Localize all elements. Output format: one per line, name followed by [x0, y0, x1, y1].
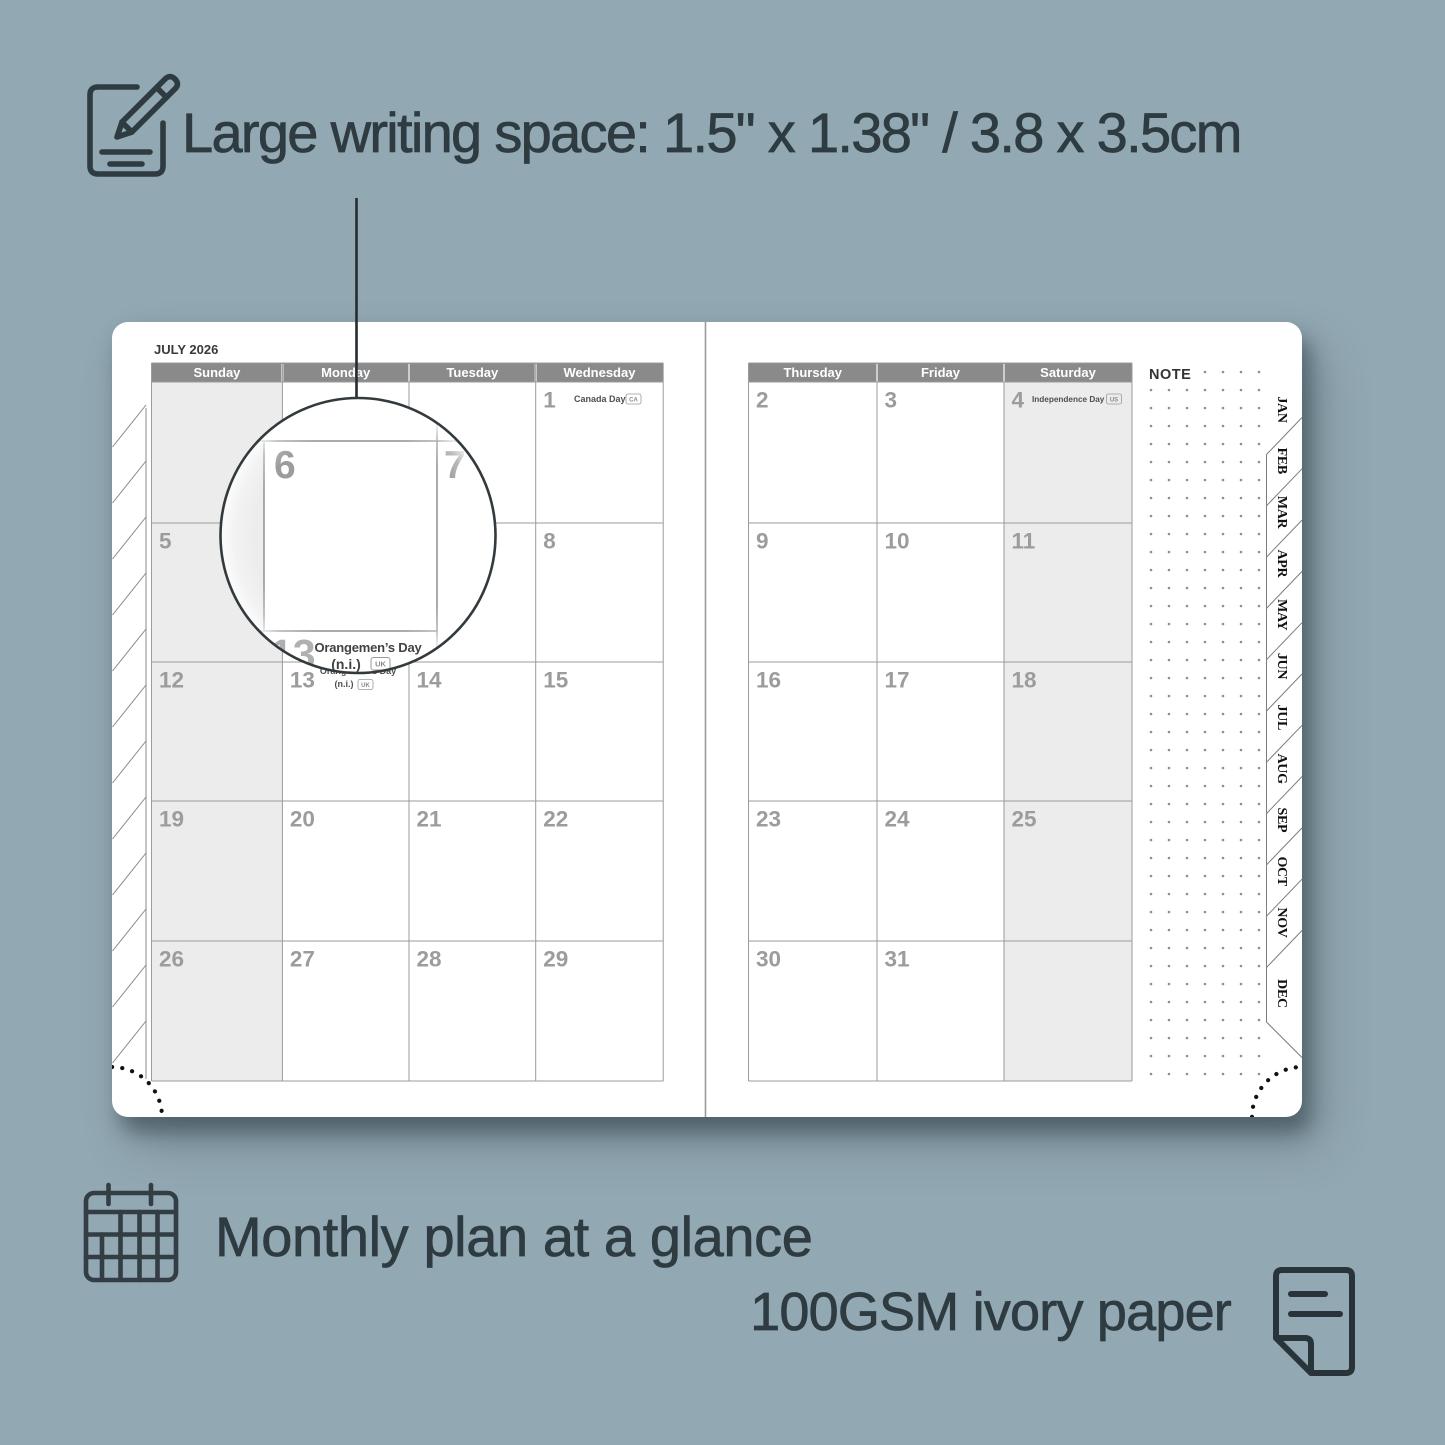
- svg-text:Orangemen’s Day: Orangemen’s Day: [314, 640, 422, 655]
- svg-text:UK: UK: [375, 660, 386, 669]
- svg-text:(n.i.): (n.i.): [331, 656, 361, 672]
- svg-text:13: 13: [270, 631, 316, 677]
